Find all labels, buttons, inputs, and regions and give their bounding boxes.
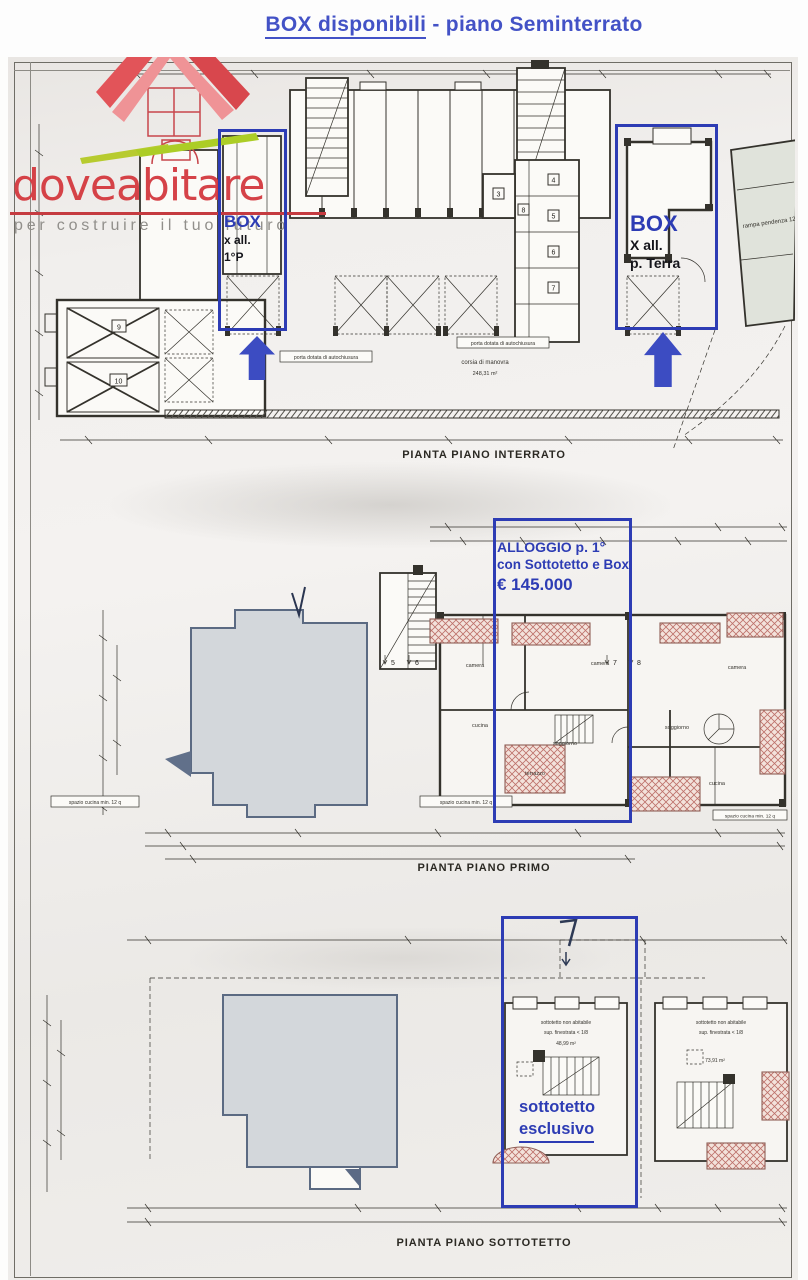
stair-block [380, 565, 436, 669]
alloggio-annotation: ALLOGGIO p. 1° con Sottotetto e Box € 14… [497, 539, 629, 597]
unit-number: 8 [637, 660, 641, 667]
alloggio-line2: con Sottotetto e Box [497, 556, 629, 573]
room-number: 9 [117, 325, 121, 332]
box-right-annotation: BOX X all. p. Terra [630, 212, 680, 272]
alloggio-price: € 145.000 [497, 573, 629, 597]
sottotetto-line2: esclusivo [519, 1118, 594, 1143]
box-left-line1: x all. [224, 232, 261, 249]
garage-stalls [225, 276, 681, 336]
room-label: camera [728, 665, 747, 671]
flyer-page: 9 10 [0, 0, 808, 1280]
aisle-area-label: 248,31 m² [473, 371, 498, 377]
room-label: camera [466, 663, 485, 669]
plan1-caption: PIANTA PIANO INTERRATO [204, 449, 764, 461]
room-label: soggiorno [665, 725, 689, 731]
aisle-label: corsia di manovra [461, 360, 509, 366]
box-left-annotation: BOX x all. 1°P [224, 212, 261, 266]
cantina-number: 5 [552, 214, 556, 221]
unbuilt-gray-area [165, 610, 367, 817]
room-number: 10 [115, 379, 123, 386]
title-highlight: BOX disponibili [265, 13, 426, 39]
box-right-line1: X all. [630, 236, 680, 254]
cantina-number: 3 [497, 192, 501, 199]
unit-number: 5 [391, 660, 395, 667]
ramp: rampa pendenza 12% [731, 140, 795, 326]
plan3-caption: PIANTA PIANO SOTTOTETTO [204, 1237, 764, 1249]
kitchen-note: spazio cucina min. 12 q [440, 800, 492, 806]
cantina-number: 7 [552, 286, 556, 293]
page-title: BOX disponibili - piano Seminterrato [0, 13, 808, 37]
attic-area: 73,91 m² [705, 1058, 725, 1064]
box-right-title: BOX [630, 212, 680, 236]
alloggio-line1: ALLOGGIO p. 1° [497, 539, 629, 556]
title-bar: BOX disponibili - piano Seminterrato [0, 0, 808, 57]
box-left-title: BOX [224, 212, 261, 232]
kitchen-note: spazio cucina min. 12 q [69, 800, 121, 806]
room-label: cucina [472, 723, 489, 729]
attic-label: sottotetto non abitabile [696, 1020, 747, 1026]
cantina-number: 8 [522, 208, 526, 215]
cantina-number: 6 [552, 250, 556, 257]
sottotetto-line1: sottotetto [519, 1096, 595, 1118]
kitchen-note: spazio cucina min. 12 q [725, 814, 775, 820]
cantina-rooms: 3 4 5 6 7 8 [483, 160, 579, 342]
room-label: cucina [709, 781, 726, 787]
cantina-number: 4 [552, 178, 556, 185]
bottom-wall [165, 410, 779, 418]
attic-label: sup. finestrata < 1/8 [699, 1030, 743, 1036]
plan2-caption: PIANTA PIANO PRIMO [204, 862, 764, 874]
plan-primo-drawing: camera camera camera cucina cucina soggi… [15, 515, 795, 865]
title-rest: - piano Seminterrato [426, 13, 642, 36]
door-label: porta dotata di autochiusura [471, 341, 535, 347]
box-left-line2: 1°P [224, 249, 261, 266]
unbuilt-gray-area [223, 995, 397, 1189]
door-label: porta dotata di autochiusura [294, 355, 358, 361]
sottotetto-annotation: sottotetto esclusivo [519, 1096, 595, 1143]
highlight-box-sottotetto [501, 916, 638, 1208]
plan-text-labels: porta dotata di autochiusura porta dotat… [280, 337, 549, 377]
box-right-line2: p. Terra [630, 254, 680, 272]
unit-number: 6 [415, 660, 419, 667]
site-boundary-lines [673, 326, 785, 450]
attic-right-room: sottotetto non abitabile sup. finestrata… [655, 997, 789, 1169]
plan-sottotetto-drawing: sottotetto non abitabile sup. finestrata… [15, 900, 795, 1252]
